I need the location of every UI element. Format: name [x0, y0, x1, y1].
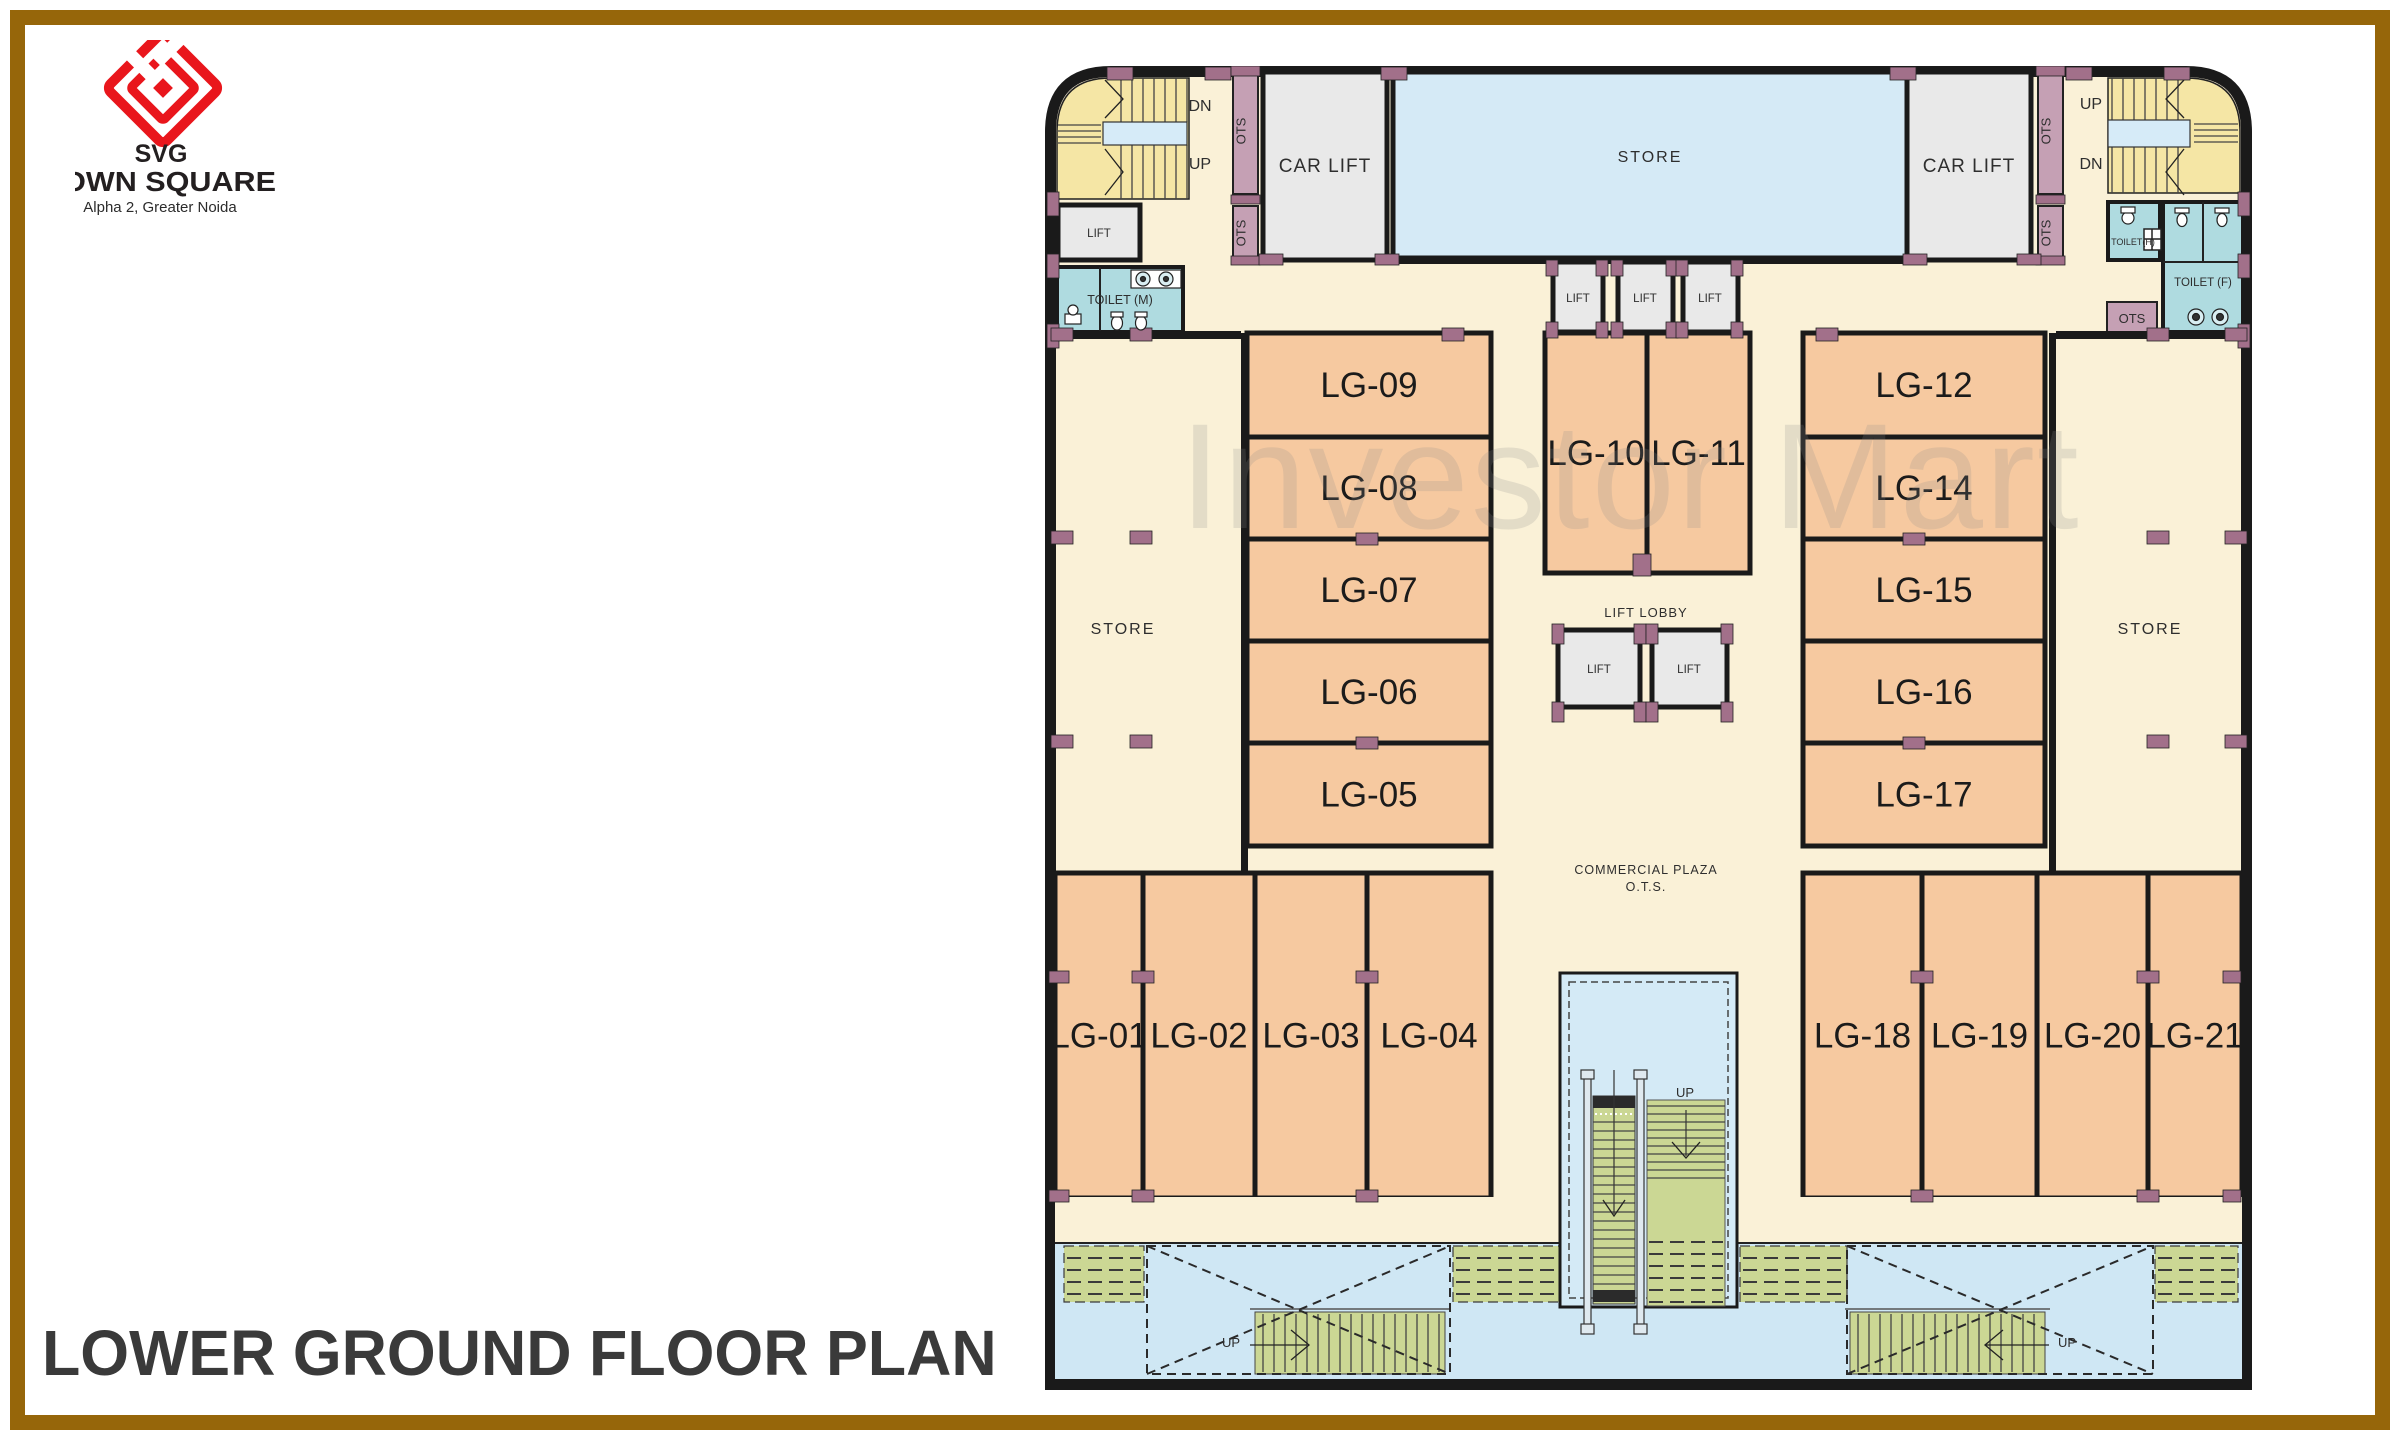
pillar [1051, 735, 1073, 748]
pillar [2238, 254, 2250, 278]
pillar [1646, 624, 1658, 644]
pillar [1646, 702, 1658, 722]
pillar [2223, 1190, 2241, 1202]
ots-label: OTS [1234, 117, 1249, 144]
ots-box-label: OTS [2119, 311, 2146, 326]
unit-label: LG-03 [1262, 1017, 1359, 1056]
pillar [1130, 531, 1152, 544]
stair-dn-left: DN [1188, 98, 1211, 115]
pillar [1903, 254, 1927, 265]
pillar [1611, 322, 1623, 338]
floor-plan: LG-01LG-02LG-03LG-04LG-05LG-06LG-07LG-08… [1045, 66, 2252, 1390]
toilet-h-label: TOILET(H) [2111, 237, 2155, 247]
pillar [2225, 735, 2247, 748]
unit-LG-16: LG-16 [1803, 641, 2045, 743]
unit-LG-03: LG-03 [1255, 873, 1367, 1198]
band-up-left: UP [1222, 1335, 1240, 1350]
pillar [2036, 66, 2065, 76]
pillar [1231, 256, 1260, 265]
pillar [1596, 322, 1608, 338]
lift-lobby-label: LIFT LOBBY [1604, 605, 1687, 620]
unit-label: LG-20 [2044, 1017, 2141, 1056]
brand-name: TOWN SQUARE [75, 166, 275, 197]
pillar [1911, 971, 1933, 983]
ots-label: OTS [1234, 219, 1249, 246]
pillar [2137, 1190, 2159, 1202]
pillar [2238, 192, 2250, 216]
unit-label: LG-17 [1875, 776, 1972, 815]
unit-LG-20: LG-20 [2037, 873, 2148, 1198]
pillar [1911, 1190, 1933, 1202]
commercial-plaza-ots-label: O.T.S. [1626, 880, 1667, 894]
pillar [2147, 531, 2169, 544]
pillar [1047, 192, 1059, 216]
unit-label: LG-05 [1320, 776, 1417, 815]
pillar [1205, 67, 1231, 80]
band-up-right: UP [2058, 1335, 2076, 1350]
unit-LG-17: LG-17 [1803, 743, 2045, 846]
stair-up-right: UP [2080, 96, 2102, 113]
ots-label: OTS [2039, 219, 2054, 246]
lift-2-label: LIFT [1633, 293, 1657, 305]
unit-label: LG-04 [1380, 1017, 1477, 1056]
stair-landing-left [1103, 122, 1187, 145]
lift-3-label: LIFT [1698, 293, 1722, 305]
toilet-f-label: TOILET (F) [2174, 277, 2232, 289]
pillar [1676, 260, 1688, 276]
watermark: Investor Mart [1179, 392, 2080, 560]
pillar [2066, 67, 2092, 80]
unit-LG-05: LG-05 [1247, 743, 1491, 846]
pillar [1634, 624, 1646, 644]
pillar [1442, 328, 1464, 341]
ots-label: OTS [2039, 117, 2054, 144]
unit-label: LG-19 [1931, 1017, 2028, 1056]
pillar [1731, 322, 1743, 338]
pillar [1634, 702, 1646, 722]
pillar [2225, 328, 2247, 341]
pillar [1903, 737, 1925, 749]
unit-LG-04: LG-04 [1367, 873, 1491, 1198]
stair-up-left: UP [1189, 156, 1211, 173]
toilet-m-label: TOILET (M) [1087, 293, 1153, 307]
pillar [1721, 702, 1733, 722]
planter-hatch [1453, 1246, 1560, 1302]
escalator-up-label: UP [1676, 1085, 1694, 1100]
stair-dn-right: DN [2079, 156, 2102, 173]
page: SVG TOWN SQUARE Alpha 2, Greater Noida L… [0, 0, 2400, 1440]
brand-logo: SVG TOWN SQUARE Alpha 2, Greater Noida [75, 40, 275, 220]
lift-left-label: LIFT [1087, 228, 1111, 240]
store-right-label: STORE [2118, 621, 2183, 638]
unit-label: LG-16 [1875, 673, 1972, 712]
pillar [1546, 322, 1558, 338]
pillar [1552, 702, 1564, 722]
pillar [1721, 624, 1733, 644]
pillar [1356, 971, 1378, 983]
unit-LG-18: LG-18 [1803, 873, 1922, 1198]
logo-diamond-icon [97, 40, 230, 145]
pillar [2147, 735, 2169, 748]
unit-label: LG-02 [1150, 1017, 1247, 1056]
pillar [1051, 328, 1073, 341]
pillar [1546, 260, 1558, 276]
pillar [1676, 322, 1688, 338]
pillar [1816, 328, 1838, 341]
pillar [2036, 195, 2065, 204]
pillar [2164, 67, 2190, 80]
unit-LG-02: LG-02 [1143, 873, 1255, 1198]
pillar [2225, 531, 2247, 544]
store-left-label: STORE [1091, 621, 1156, 638]
pillar [1132, 971, 1154, 983]
pillar [1051, 531, 1073, 544]
pillar [1049, 1190, 1069, 1202]
pillar [1107, 67, 1133, 80]
pillar [2147, 328, 2169, 341]
unit-label: LG-06 [1320, 673, 1417, 712]
unit-LG-06: LG-06 [1247, 641, 1491, 743]
pillar [1356, 737, 1378, 749]
pillar [1356, 1190, 1378, 1202]
pillar [1731, 260, 1743, 276]
pillar [1130, 735, 1152, 748]
pillar [2017, 254, 2041, 265]
pillar [1611, 260, 1623, 276]
pillar [1596, 260, 1608, 276]
planter-hatch [2155, 1246, 2238, 1302]
planter-hatch [1740, 1246, 1847, 1302]
pillar [1047, 254, 1059, 278]
band-staircase [1250, 1309, 1450, 1374]
pillar [2137, 971, 2159, 983]
escalator-well [1560, 973, 1737, 1334]
store-top-label: STORE [1618, 149, 1683, 166]
floor-plan-svg: LG-01LG-02LG-03LG-04LG-05LG-06LG-07LG-08… [1045, 66, 2252, 1390]
unit-LG-21: LG-21 [2146, 873, 2243, 1198]
car-lift-left-label: CAR LIFT [1279, 156, 1371, 177]
unit-label: LG-15 [1875, 571, 1972, 610]
pillar [1049, 971, 1069, 983]
unit-label: LG-07 [1320, 571, 1417, 610]
pillar [1381, 67, 1407, 80]
pillar [1259, 254, 1283, 265]
planter-hatch [1064, 1246, 1144, 1302]
pillar [1231, 66, 1260, 76]
car-lift-right-label: CAR LIFT [1923, 156, 2015, 177]
stair-landing-right [2108, 120, 2190, 147]
unit-LG-19: LG-19 [1922, 873, 2037, 1198]
pillar [1375, 254, 1399, 265]
brand-location: Alpha 2, Greater Noida [83, 199, 237, 216]
brand-logo-text: SVG [135, 140, 188, 168]
lobby-lift-1-label: LIFT [1587, 664, 1611, 676]
lift-1-label: LIFT [1566, 293, 1590, 305]
page-title: LOWER GROUND FLOOR PLAN [42, 1316, 997, 1390]
commercial-plaza-label: COMMERCIAL PLAZA [1574, 863, 1717, 877]
pillar [1552, 624, 1564, 644]
unit-LG-01: LG-01 [1050, 873, 1147, 1198]
lobby-lift-2-label: LIFT [1677, 664, 1701, 676]
unit-label: LG-21 [2146, 1017, 2243, 1056]
pillar [1890, 67, 1916, 80]
unit-label: LG-01 [1050, 1017, 1147, 1056]
pillar [1132, 1190, 1154, 1202]
pillar [2223, 971, 2241, 983]
unit-label: LG-18 [1814, 1017, 1911, 1056]
pillar [1231, 195, 1260, 204]
